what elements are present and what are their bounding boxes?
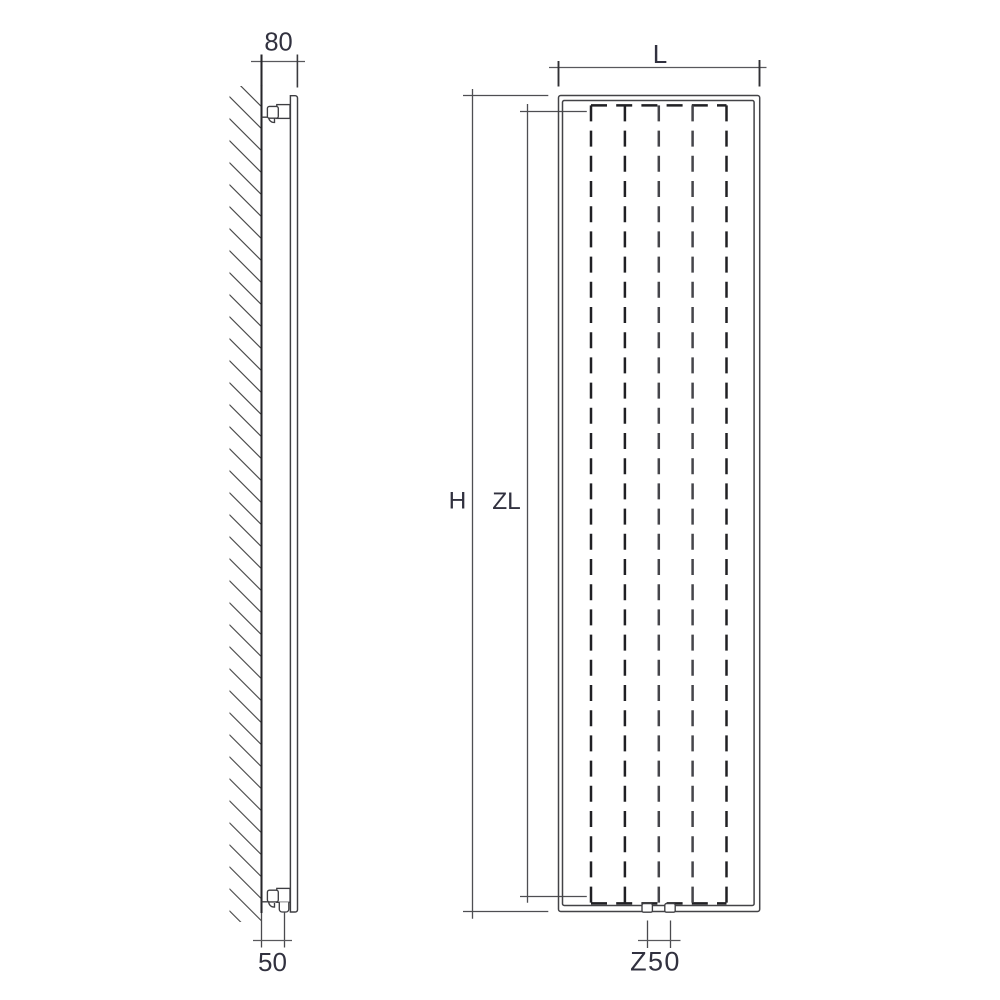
svg-text:Z50: Z50 (630, 947, 681, 977)
svg-text:80: 80 (264, 29, 292, 57)
svg-text:50: 50 (258, 947, 287, 977)
svg-text:H: H (449, 488, 467, 515)
svg-text:ZL: ZL (492, 488, 521, 515)
svg-text:L: L (653, 39, 667, 69)
